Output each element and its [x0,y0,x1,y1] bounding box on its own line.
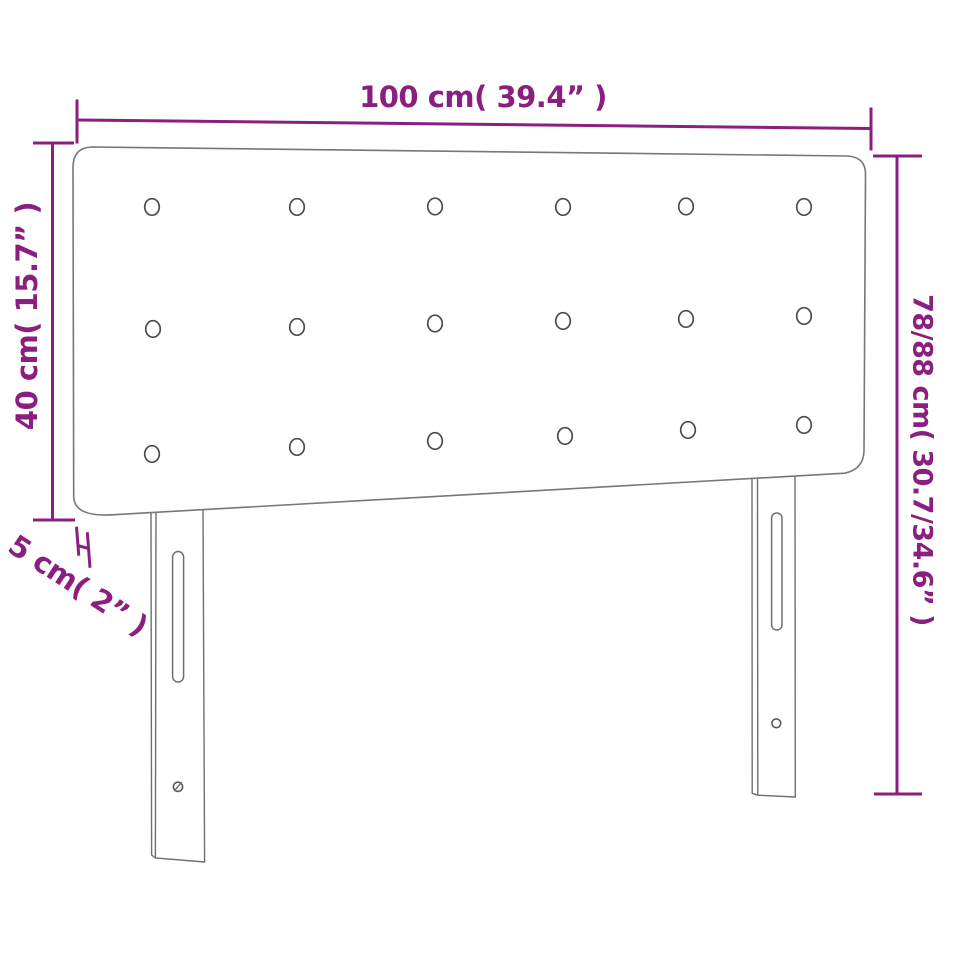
tufting-button [558,428,573,445]
tufting-button [290,199,305,216]
left-leg [151,510,205,862]
dimension-total-height: 78/88 cm( 30.7/34.6” ) [873,156,938,794]
right-leg-screw-hole [772,719,781,728]
left-leg-right-edge [203,510,205,862]
tufting-button [428,315,443,332]
dimension-width-line [77,120,871,129]
tufting-button [556,313,571,330]
tufting-button [146,321,161,338]
dimension-panel-height: 40 cm( 15.7” ) [10,143,75,520]
right-leg [752,477,795,797]
left-leg-bottom-edge [152,855,205,862]
headboard-panel-outline [73,147,866,515]
left-leg-inner-edge [155,512,156,858]
dimension-width-label: 100 cm( 39.4” ) [359,80,607,114]
tufting-button [556,199,571,216]
right-leg-bottom-edge [752,793,795,797]
tufting-button [145,199,160,216]
dimension-leg-gap-tick-b [87,532,90,567]
tufting-button [428,433,443,450]
right-leg-slot [772,513,782,630]
tufting-button [797,417,812,434]
left-leg-slot [173,552,184,683]
dimension-total-height-label: 78/88 cm( 30.7/34.6” ) [907,294,938,626]
dimension-leg-gap-tick-a [77,527,79,556]
left-leg-outer-edge [151,513,152,856]
diagram-canvas: 100 cm( 39.4” ) 40 cm( 15.7” ) 5 cm( 2” … [0,0,955,955]
headboard-dimension-diagram: 100 cm( 39.4” ) 40 cm( 15.7” ) 5 cm( 2” … [0,0,955,955]
tufting-button [428,198,443,215]
dimension-width: 100 cm( 39.4” ) [77,80,871,151]
tufting-button [145,446,160,463]
tufting-button [797,308,812,325]
tufting-button [679,311,694,328]
tufting-button [681,422,696,439]
dimension-panel-height-label: 40 cm( 15.7” ) [10,202,44,430]
dimension-leg-gap: 5 cm( 2” ) [2,527,154,643]
tufting-button [679,198,694,215]
tufting-button [797,199,812,216]
tufting-button [290,439,305,456]
tufting-button [290,319,305,336]
